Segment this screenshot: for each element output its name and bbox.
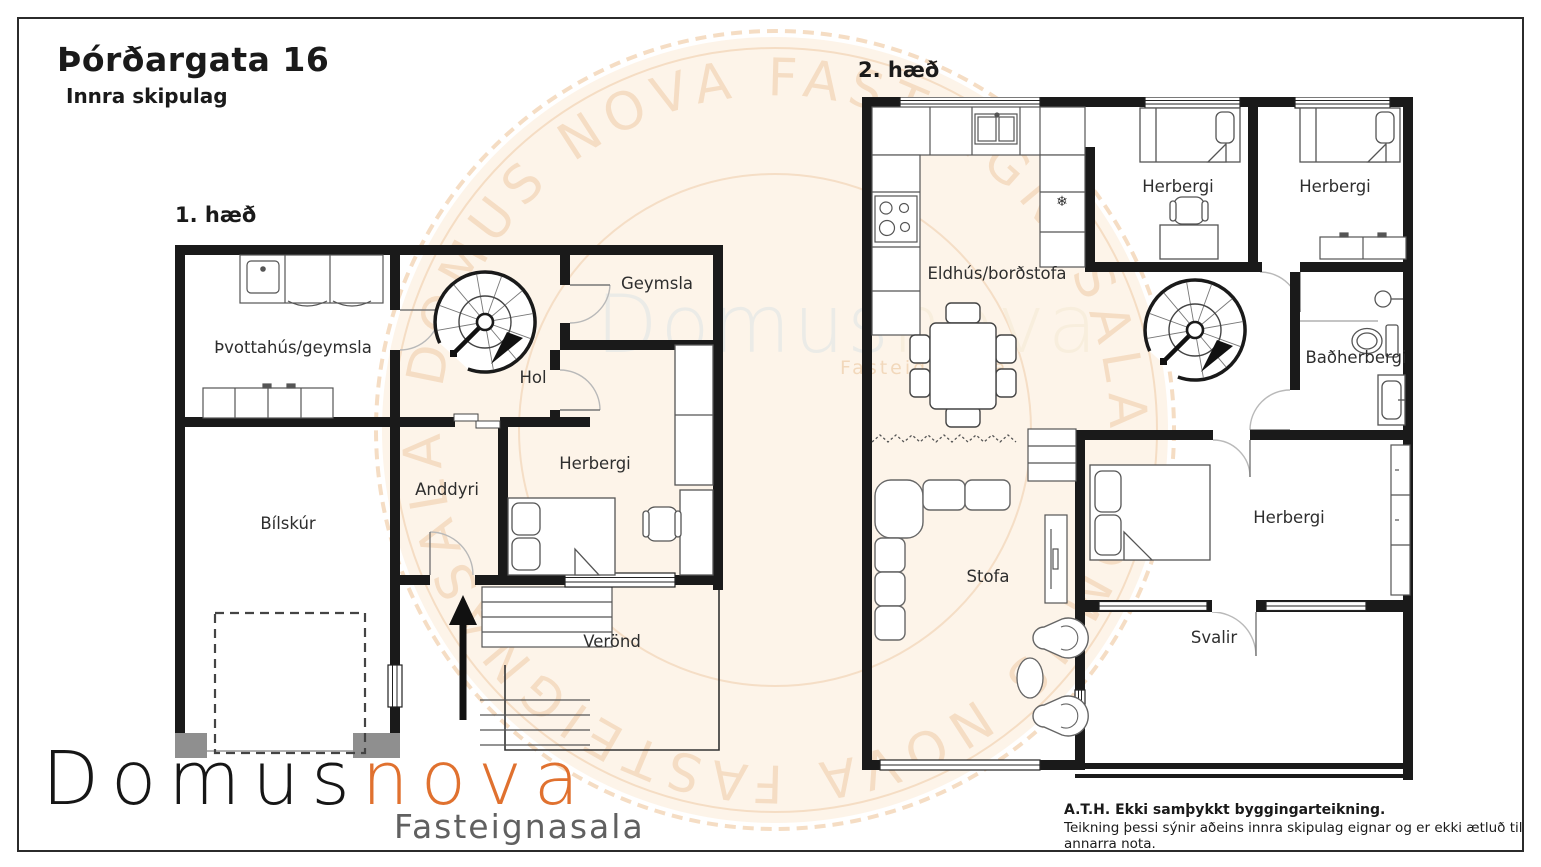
logo-primary: Domus [42, 736, 362, 822]
floor2-walls [862, 97, 1413, 780]
zigzag-divider [872, 435, 1016, 442]
floor1-label: 1. hæð [175, 203, 256, 227]
room-label-living: Stofa [967, 567, 1010, 586]
floor2-plan: ❄ [862, 97, 1413, 780]
kitchen-sink-icon [975, 113, 1017, 144]
desk-chair-icon [643, 345, 713, 575]
window-icon [880, 760, 1040, 770]
spiral-staircase-icon [1145, 280, 1245, 380]
room-label-porch: Verönd [583, 632, 641, 651]
window-icon [900, 97, 1040, 108]
disclaimer-line1: A.T.H. Ekki samþykkt byggingarteikning. [1064, 802, 1534, 820]
shower-icon [1300, 291, 1403, 321]
fridge-snowflake-icon: ❄ [1056, 194, 1068, 210]
tv-unit-icon [1045, 515, 1067, 603]
armchair-icon [1033, 696, 1088, 736]
sliding-door-icon [454, 414, 500, 428]
room-label-balcony: Svalir [1191, 628, 1238, 647]
laundry-counter-icon [240, 255, 383, 306]
shelf-icon [1028, 429, 1076, 481]
floorplan-page: DOMUS NOVA FASTEIGNASALA DOMUS NOVA FAST… [0, 0, 1541, 867]
bed-icon [1300, 108, 1400, 162]
disclaimer-line2: Teikning þessi sýnir aðeins innra skipul… [1064, 820, 1534, 854]
bed-icon [508, 498, 615, 575]
room-label-entry: Anddyri [415, 480, 479, 499]
room-label-bedroom-a: Herbergi [1142, 177, 1214, 196]
room-label-hall: Hol [519, 368, 546, 387]
page-title: Þórðargata 16 [57, 40, 329, 79]
room-label-bedroom-b: Herbergi [1299, 177, 1371, 196]
entrance-arrow-icon [449, 595, 477, 720]
room-label-bedroom: Herbergi [559, 454, 631, 473]
wardrobe-icon [1391, 445, 1410, 595]
window-icon [1145, 97, 1240, 108]
laundry-cabinets-icon [203, 384, 333, 418]
side-table-icon [1017, 658, 1043, 698]
dresser-icon [1320, 233, 1406, 259]
window-icon [388, 665, 402, 707]
disclaimer: A.T.H. Ekki samþykkt byggingarteikning. … [1064, 802, 1534, 853]
room-label-bedroom-c: Herbergi [1253, 508, 1325, 527]
page-subtitle: Innra skipulag [66, 84, 228, 108]
window-icon [1099, 602, 1207, 611]
bathroom-sink-icon [1378, 375, 1405, 425]
car-space-dashed [215, 613, 365, 753]
logo-tagline: Fasteignasala [394, 810, 645, 843]
brand-logo: Domusnova Fasteignasala [42, 742, 645, 843]
bed-icon [1090, 465, 1210, 560]
sofa-icon [875, 480, 1010, 640]
armchair-icon [1033, 618, 1088, 658]
window-icon [1295, 97, 1390, 108]
stove-icon [875, 196, 917, 242]
room-label-laundry: Þvottahús/geymsla [214, 338, 372, 357]
dining-table-icon [910, 303, 1016, 427]
floor2-label: 2. hæð [858, 58, 939, 82]
desk-chair-icon [1160, 197, 1218, 259]
room-label-bathroom: Baðherbergi [1305, 348, 1406, 367]
room-label-kitchen: Eldhús/borðstofa [927, 264, 1066, 283]
bed-icon [1140, 108, 1240, 162]
room-label-garage: Bílskúr [260, 514, 316, 533]
floor1-plan: Þvottahús/geymsla Geymsla Hol Herbergi A… [175, 245, 723, 762]
room-label-storage: Geymsla [621, 274, 693, 293]
balcony-door-gap [1212, 600, 1256, 612]
spiral-staircase-icon [435, 272, 535, 372]
window-icon [1266, 602, 1366, 611]
